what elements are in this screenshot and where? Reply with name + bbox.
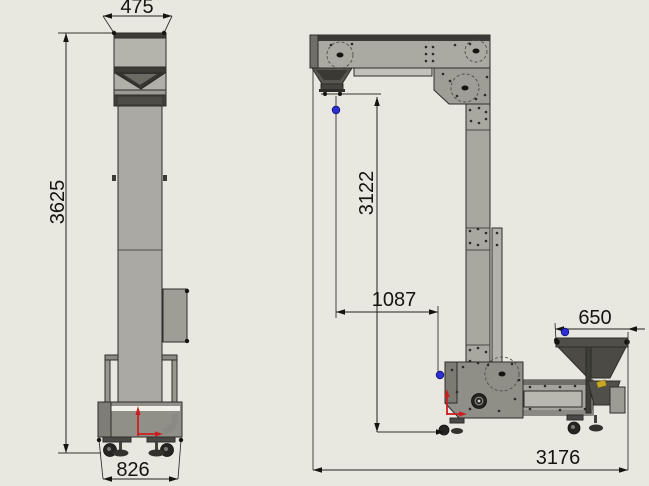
dim-drop-height: 3122	[321, 92, 445, 435]
side-z-conveyor-body	[310, 35, 630, 435]
dim-drop-height-label: 3122	[356, 171, 378, 216]
front-elevator-body	[98, 33, 189, 457]
datum-point-infeed	[561, 328, 569, 336]
dim-overall-height: 3625	[47, 33, 112, 453]
front-tower-column	[118, 106, 162, 402]
dim-horizontal-reach-label: 1087	[372, 289, 417, 311]
dim-infeed-width-label: 650	[578, 307, 611, 329]
datum-points	[332, 106, 569, 379]
datum-point-boot	[436, 371, 444, 379]
dim-top-width: 475	[103, 0, 172, 35]
front-view: 475 3625 826	[47, 0, 189, 482]
boot-roller	[472, 394, 487, 409]
dim-overall-length-label: 3176	[536, 447, 581, 469]
front-head-top-band	[114, 33, 166, 38]
side-arm-underside-panel	[354, 68, 432, 76]
dim-top-width-label: 475	[120, 0, 153, 18]
dim-horizontal-reach: 1087	[336, 96, 438, 374]
front-funnel-bar	[114, 67, 166, 73]
z-elevator-drawing: 475 3625 826	[0, 0, 649, 486]
dim-base-width-label: 826	[116, 459, 149, 481]
front-feet	[103, 437, 175, 457]
datum-point-discharge	[332, 106, 340, 114]
side-view: 3122 1087 650	[310, 35, 645, 473]
dim-overall-height-label: 3625	[47, 180, 69, 225]
technical-drawing-canvas: 475 3625 826	[0, 0, 649, 486]
front-side-box	[163, 289, 187, 342]
side-column-back-wall	[492, 228, 502, 362]
